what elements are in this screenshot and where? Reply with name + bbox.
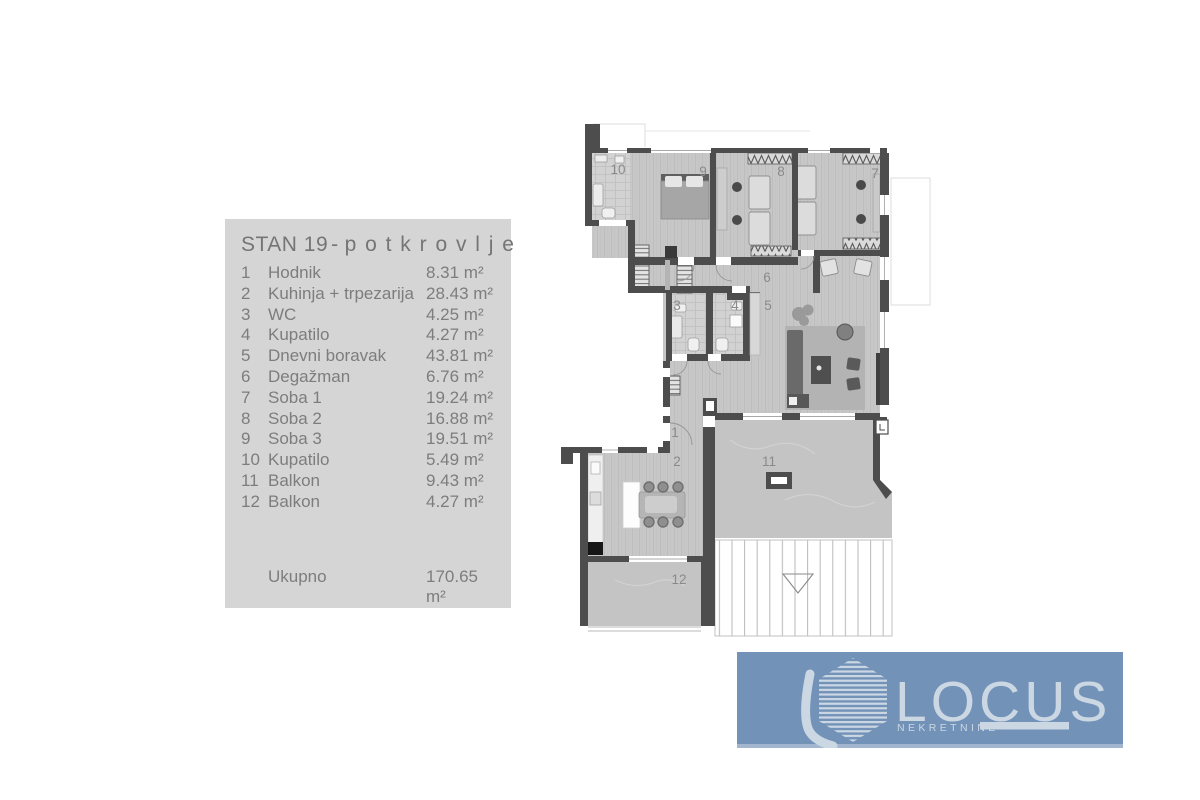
total-row: Ukupno 170.65 m²	[241, 567, 497, 607]
room-row-12-area: 4.27 m²	[426, 492, 497, 513]
room-row-2-num: 2	[241, 284, 268, 305]
room-row-3-name: WC	[268, 305, 426, 326]
room-row-9-area: 19.51 m²	[426, 429, 497, 450]
apartment-info-panel: STAN 19-potkrovlje 1Hodnik8.31 m²2Kuhinj…	[225, 219, 511, 608]
tv-icon	[876, 353, 880, 405]
title-separator: -	[331, 233, 339, 256]
apartment-name: STAN 19	[241, 233, 328, 256]
room-row-2-name: Kuhinja + trpezarija	[268, 284, 426, 305]
room-row-3-area: 4.25 m²	[426, 305, 497, 326]
room-row-7-num: 7	[241, 388, 268, 409]
room-row-1-num: 1	[241, 263, 268, 284]
room-list: 1Hodnik8.31 m²2Kuhinja + trpezarija28.43…	[241, 263, 497, 513]
room-row-8-name: Soba 2	[268, 409, 426, 430]
room-row-4-name: Kupatilo	[268, 325, 426, 346]
room-row-6-name: Degažman	[268, 367, 426, 388]
room-label-11: 11	[762, 454, 776, 469]
room-row-5-name: Dnevni boravak	[268, 346, 426, 367]
room-label-12: 12	[671, 572, 686, 587]
room-row-2-area: 28.43 m²	[426, 284, 497, 305]
room-row-12-name: Balkon	[268, 492, 426, 513]
total-label: Ukupno	[268, 567, 426, 607]
room-row-9-name: Soba 3	[268, 429, 426, 450]
stairs	[715, 540, 892, 636]
room-row-11-name: Balkon	[268, 471, 426, 492]
room-row-12-num: 12	[241, 492, 268, 513]
shaft-strip	[750, 293, 760, 355]
corner-window-symbol	[876, 420, 888, 434]
logo-underline-bar	[980, 722, 1069, 730]
floor-name: potkrovlje	[345, 233, 523, 256]
desk	[873, 174, 880, 232]
floor-plan: 1 2 3 4 5 6 7 8 9 10 11 12	[555, 110, 955, 670]
room-row-8-area: 16.88 m²	[426, 409, 497, 430]
room-row-3-num: 3	[241, 305, 268, 326]
room-label-6: 6	[763, 270, 771, 285]
room-label-1: 1	[671, 425, 679, 440]
total-area: 170.65 m²	[426, 567, 497, 607]
room-row-7-name: Soba 1	[268, 388, 426, 409]
room-row-9-num: 9	[241, 429, 268, 450]
room-label-3: 3	[673, 298, 681, 313]
bedroom9-bed	[661, 174, 709, 219]
room-row-11-num: 11	[241, 471, 268, 492]
room-row-7-area: 19.24 m²	[426, 388, 497, 409]
room-label-2: 2	[673, 454, 681, 469]
room-row-8-num: 8	[241, 409, 268, 430]
room-row-5-num: 5	[241, 346, 268, 367]
balcony11-planter	[766, 472, 792, 489]
room-label-10: 10	[610, 162, 625, 177]
room-row-4-num: 4	[241, 325, 268, 346]
room-row-5-area: 43.81 m²	[426, 346, 497, 367]
locus-logo: LOCUS NEKRETNINE	[737, 652, 1123, 748]
room-row-11-area: 9.43 m²	[426, 471, 497, 492]
room-label-8: 8	[777, 164, 785, 179]
room-label-9: 9	[699, 164, 707, 179]
room-row-1-name: Hodnik	[268, 263, 426, 284]
room-label-5: 5	[764, 298, 772, 313]
room-label-7: 7	[871, 166, 879, 181]
total-num-spacer	[241, 567, 268, 607]
room-label-4: 4	[731, 298, 739, 313]
panel-title: STAN 19-potkrovlje	[241, 233, 511, 257]
room-row-6-num: 6	[241, 367, 268, 388]
closet	[717, 168, 727, 230]
room-row-6-area: 6.76 m²	[426, 367, 497, 388]
logo-bottom-strip	[737, 744, 1123, 748]
page: STAN 19-potkrovlje 1Hodnik8.31 m²2Kuhinj…	[0, 0, 1200, 800]
room-row-10-area: 5.49 m²	[426, 450, 497, 471]
room-row-4-area: 4.27 m²	[426, 325, 497, 346]
room-row-10-name: Kupatilo	[268, 450, 426, 471]
room-row-1-area: 8.31 m²	[426, 263, 497, 284]
balcony-open-edges	[588, 627, 701, 631]
open-door-leaf	[665, 260, 670, 290]
room-row-10-num: 10	[241, 450, 268, 471]
